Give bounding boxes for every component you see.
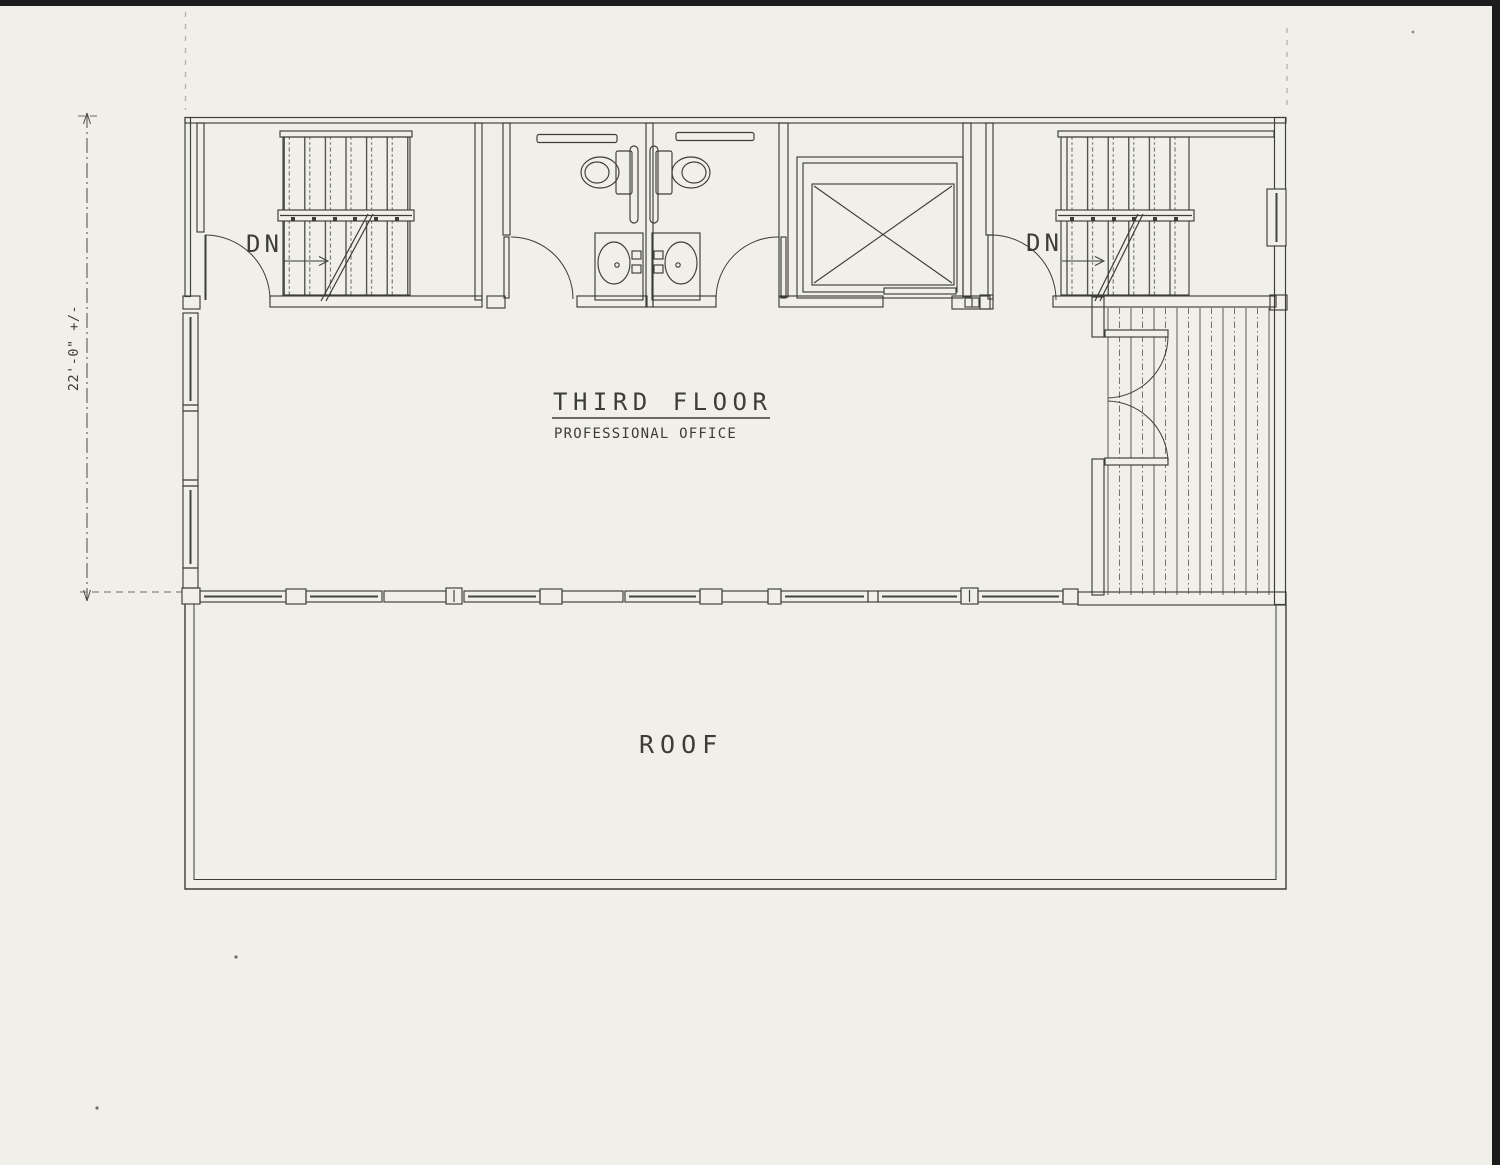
- bathroom1-west-wall: [503, 123, 510, 235]
- roof-outline-inner: [194, 604, 1276, 880]
- stair-room-west-wall: [986, 123, 993, 235]
- roof-outline-outer: [185, 604, 1286, 889]
- wall-post: [980, 295, 993, 309]
- bathrooms: [503, 123, 788, 307]
- door-leaf: [1105, 330, 1168, 337]
- toilet-icon: [650, 146, 710, 223]
- wall-post: [1270, 295, 1287, 310]
- elevator-shaft-wall-inner: [803, 163, 957, 292]
- stairway-right: DN: [980, 123, 1276, 309]
- plan-subtitle-text: PROFESSIONAL OFFICE: [554, 426, 737, 442]
- dimension-annotation-west: 22'-0" +/-: [66, 113, 182, 601]
- wall-post: [1063, 589, 1078, 604]
- bathroom2-east-wall: [779, 123, 788, 297]
- wall-post: [700, 589, 722, 604]
- door-leaf: [988, 235, 993, 299]
- wall-post: [487, 296, 505, 308]
- elevator: [779, 123, 990, 309]
- floor-plan-drawing: 22'-0" +/-: [0, 0, 1500, 1165]
- window: [183, 411, 198, 480]
- bathroom1-south-wall: [577, 296, 647, 307]
- stair-room-south-wall: [270, 296, 482, 307]
- west-window-band: [183, 313, 198, 588]
- elevator-cab-icon: [812, 184, 954, 285]
- window: [384, 591, 446, 602]
- scan-speck: [1412, 31, 1415, 34]
- roof-label: ROOF: [639, 730, 723, 759]
- plan-title-text: THIRD FLOOR: [553, 388, 772, 416]
- stair-down-label: DN: [1026, 229, 1063, 257]
- scan-speck: [234, 955, 237, 958]
- wall-post: [768, 589, 781, 604]
- door-leaf: [1105, 458, 1168, 465]
- window-joint: [183, 405, 198, 411]
- roof-area: ROOF: [185, 604, 1286, 889]
- wall-post: [182, 588, 200, 604]
- wall-post: [286, 589, 306, 604]
- scan-speck: [95, 1106, 98, 1109]
- door-swing-arc: [716, 237, 779, 299]
- dimension-label: 22'-0" +/-: [66, 305, 82, 391]
- stair-header-wall: [1058, 131, 1274, 137]
- sink-vanity-icon: [595, 233, 643, 300]
- door-leaf: [504, 237, 509, 298]
- door-leaf: [781, 237, 786, 298]
- stair-room-east-wall: [475, 123, 482, 300]
- door-swing-arc: [511, 237, 573, 299]
- window-joint: [868, 591, 878, 602]
- scan-edge-top: [0, 0, 1500, 6]
- deck-west-wall: [1092, 459, 1104, 595]
- bathroom2-south-wall: [653, 296, 716, 307]
- stairway-left: DN: [197, 123, 505, 308]
- sink-vanity-icon: [652, 233, 700, 300]
- west-wall-upper: [185, 118, 191, 297]
- window: [562, 591, 623, 602]
- north-wall: [185, 118, 1286, 124]
- window-joint: [183, 568, 198, 588]
- stair-header-wall: [280, 131, 412, 137]
- deck: [1092, 297, 1276, 595]
- elevator-sliding-door: [884, 288, 956, 294]
- stair-down-label: DN: [246, 230, 283, 258]
- shelf: [676, 133, 754, 141]
- window-joint: [183, 480, 198, 486]
- toilet-icon: [581, 146, 638, 223]
- south-window-band: [200, 588, 1078, 604]
- deck-board-hatch: [1104, 308, 1276, 595]
- window: [722, 591, 768, 602]
- wall-post: [540, 589, 562, 604]
- deck-west-wall: [1092, 297, 1104, 337]
- stair-room-west-wall: [197, 123, 204, 232]
- scan-edge-right: [1492, 0, 1500, 1165]
- elevator-east-wall: [963, 123, 971, 297]
- floor-plan-sheet: 22'-0" +/-: [0, 0, 1500, 1165]
- wall-post: [183, 296, 200, 309]
- shelf: [537, 135, 617, 143]
- stair-room-south-wall: [1053, 296, 1276, 307]
- plan-title: THIRD FLOOR PROFESSIONAL OFFICE: [552, 388, 772, 442]
